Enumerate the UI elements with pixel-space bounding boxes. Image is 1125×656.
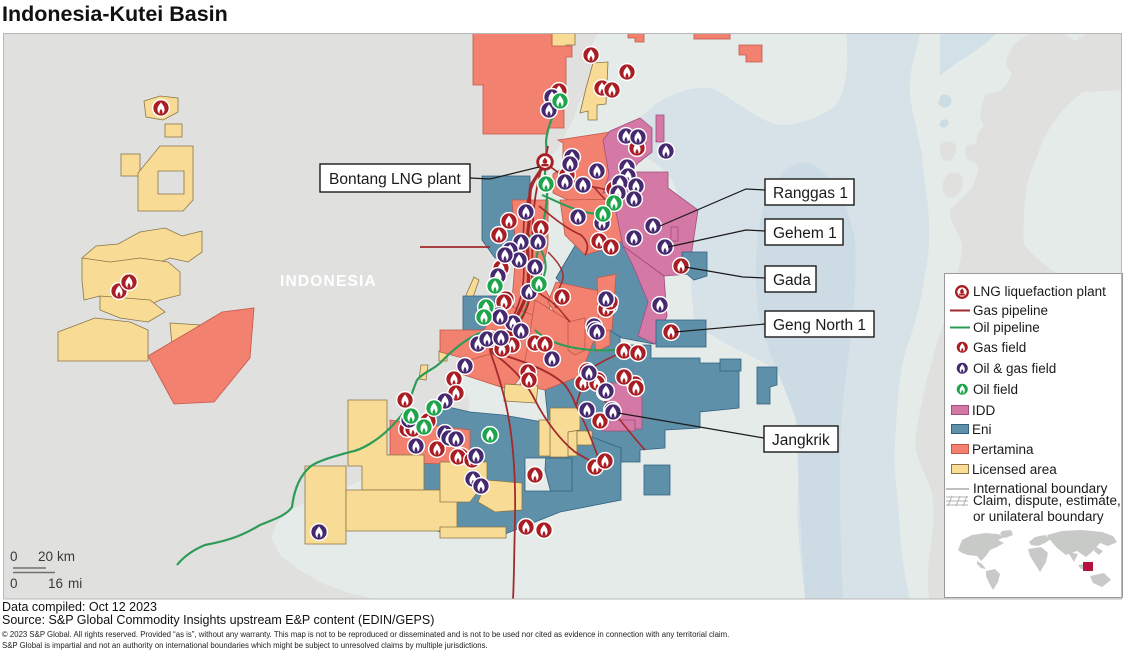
svg-text:Gas field: Gas field xyxy=(973,340,1026,355)
svg-text:Gada: Gada xyxy=(773,272,811,289)
svg-text:Source: S&P Global Commodity I: Source: S&P Global Commodity Insights up… xyxy=(2,613,434,627)
svg-text:Ranggas 1: Ranggas 1 xyxy=(773,185,848,202)
svg-text:Oil field: Oil field xyxy=(973,382,1018,397)
svg-text:Gas pipeline: Gas pipeline xyxy=(973,303,1048,318)
svg-text:INDONESIA: INDONESIA xyxy=(280,273,377,290)
svg-text:Pertamina: Pertamina xyxy=(972,442,1034,457)
svg-text:km: km xyxy=(57,549,75,564)
svg-text:Bontang LNG plant: Bontang LNG plant xyxy=(329,171,462,188)
svg-text:Oil pipeline: Oil pipeline xyxy=(973,320,1040,335)
svg-text:© 2023 S&P Global. All rights: © 2023 S&P Global. All rights reserved. … xyxy=(2,630,729,639)
svg-text:20: 20 xyxy=(38,549,53,564)
svg-text:LNG liquefaction plant: LNG liquefaction plant xyxy=(973,284,1106,299)
svg-text:IDD: IDD xyxy=(972,403,996,418)
svg-text:Eni: Eni xyxy=(972,422,992,437)
svg-text:mi: mi xyxy=(68,576,82,591)
svg-text:Indonesia-Kutei Basin: Indonesia-Kutei Basin xyxy=(2,2,228,26)
svg-text:Oil & gas field: Oil & gas field xyxy=(973,361,1056,376)
svg-text:S&P Global is impartial and no: S&P Global is impartial and not an autho… xyxy=(2,641,488,650)
svg-text:Gehem 1: Gehem 1 xyxy=(773,225,837,242)
svg-text:Claim, dispute, estimate,: Claim, dispute, estimate, xyxy=(973,493,1121,508)
svg-text:Licensed area: Licensed area xyxy=(972,462,1057,477)
svg-text:Jangkrik: Jangkrik xyxy=(772,432,830,449)
svg-text:or unilateral boundary: or unilateral boundary xyxy=(973,509,1104,524)
svg-text:Data compiled: Oct 12 2023: Data compiled: Oct 12 2023 xyxy=(2,600,157,614)
svg-text:0: 0 xyxy=(10,576,18,591)
svg-text:0: 0 xyxy=(10,549,18,564)
svg-text:Geng North 1: Geng North 1 xyxy=(773,317,866,334)
svg-text:16: 16 xyxy=(48,576,63,591)
